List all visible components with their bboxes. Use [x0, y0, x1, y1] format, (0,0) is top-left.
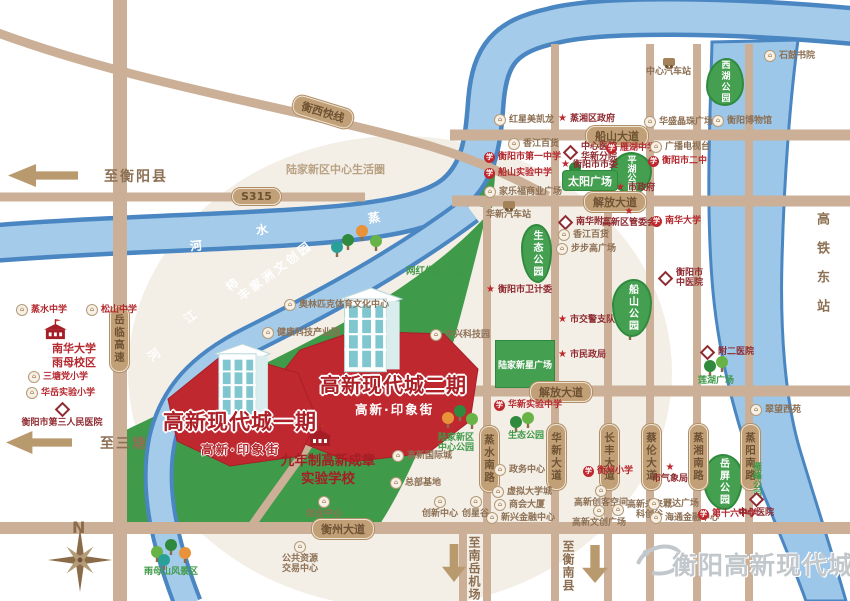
poi-huayue-primary: 华岳实验小学: [26, 387, 95, 399]
poi-star-valley: 创星谷: [462, 496, 489, 519]
poi-city-committee: 衡阳市市委: [561, 160, 618, 170]
place-icon: [494, 464, 506, 476]
poi-central-bus-station: 中心汽车站: [646, 58, 691, 77]
poi-yanhu-middle: 雁湖中学: [606, 143, 656, 154]
place-icon: [764, 50, 776, 62]
place-icon: [294, 541, 306, 553]
place-icon: [262, 327, 274, 339]
river-label-xiangjiang: 江: [789, 320, 801, 337]
nanhua-campus-label: 南华大学 雨母校区: [28, 342, 120, 371]
place-icon: [484, 186, 496, 198]
phase2-street-label: 高新·印象街: [355, 399, 434, 418]
poi-startup-center: 创业中心: [306, 496, 342, 519]
place-icon: [86, 304, 98, 316]
poi-civil-affairs: 市民政局: [558, 350, 606, 360]
road-label-jiefang-avenue-south: 解放大道: [530, 382, 592, 402]
star-icon: [666, 463, 675, 473]
poi-tv-station: 广播电视台: [650, 141, 710, 153]
place-icon: [650, 141, 662, 153]
poi-resource-center: 公共资源 交易中心: [282, 541, 318, 575]
hospital-icon: [54, 402, 70, 418]
poi-huaxin-exp-middle: 华新实验中学: [494, 400, 562, 411]
poi-xiangjiang-store-south: 香江百货: [558, 229, 609, 241]
poi-hengyang-museum: 衡阳博物馆: [712, 115, 772, 127]
place-icon: [595, 485, 607, 497]
poi-no3-hospital: 衡阳市第三人民医院: [12, 402, 112, 428]
dir-to-santang: 至三塘: [100, 433, 148, 453]
place-icon: [508, 138, 520, 150]
poi-zhengshui-middle: 蒸水中学: [16, 304, 67, 316]
poi-huasheng-plaza: 华盛晶珠广场: [644, 116, 713, 128]
star-icon: [625, 207, 634, 217]
poi-carrefour-plaza: 家乐福商业广场: [484, 186, 562, 198]
school-icon: [494, 400, 505, 411]
river-label-xiangjiang: 湘: [787, 288, 799, 305]
poi-city-gov: 市政府: [616, 183, 655, 193]
compass-north-label: N: [72, 518, 85, 537]
poi-health-tech-park: 健康科技产业园: [262, 327, 340, 339]
dir-to-hengnan-county: 至衡南县: [560, 540, 577, 592]
place-icon: [434, 496, 446, 508]
poi-virtual-university: 虚拟大学城: [492, 486, 552, 498]
river-label-zhengshui: 河: [189, 236, 203, 254]
place-icon: [650, 512, 662, 524]
school-icon: [648, 156, 659, 167]
hospital-icon: [700, 345, 716, 361]
phase2-title: 高新现代城二期: [320, 369, 467, 398]
school-icon: [484, 168, 495, 179]
poi-olympic-center: 奥林匹克体育文化中心: [284, 299, 389, 311]
poi-central-hospital-south: 中心医院: [738, 492, 774, 518]
poi-songshan-middle: 松山中学: [86, 304, 137, 316]
school-icon: [651, 216, 662, 227]
place-icon: [430, 329, 442, 341]
yumu-scenic-label: 雨母山风景区: [144, 567, 198, 577]
poi-traffic-police: 市交警支队: [558, 315, 615, 325]
poi-meteorology: 市气象局: [652, 463, 688, 484]
poi-xiangjiang-store-north: 香江百货: [508, 138, 559, 150]
poi-nanhua-university: 南华大学: [651, 216, 701, 227]
school-icon: [698, 509, 709, 520]
chengzhang-school-label: 九年制高新成章 实验学校: [272, 452, 384, 488]
bus-icon: [663, 58, 675, 66]
poi-gov-service-center: 政务中心: [494, 464, 545, 476]
compass-icon: [48, 528, 112, 592]
place-icon: [16, 304, 28, 316]
road-label-huaxin-avenue: 华新大道: [547, 424, 566, 490]
lianhu-plaza-label: 莲湖广场: [698, 376, 734, 386]
river-label-zhengshui: 水: [255, 220, 269, 239]
poi-hq-base: 总部基地: [390, 477, 441, 489]
park-xihu: 西湖公园: [706, 58, 744, 106]
dir-to-hengyang-county: 至衡阳县: [104, 166, 168, 186]
place-icon: [712, 115, 724, 127]
school-icon: [583, 466, 594, 477]
place-icon: [28, 371, 40, 383]
place-icon: [558, 229, 570, 241]
star-icon: [558, 315, 567, 325]
place-icon: [470, 496, 482, 508]
poi-chuanshan-exp-middle: 船山实验中学: [484, 168, 552, 179]
place-icon: [494, 114, 506, 126]
park-eco-south-label: 生态公园: [508, 431, 544, 441]
poi-hongxing-meikailong: 红星美凯龙: [494, 114, 554, 126]
place-icon: [494, 499, 506, 511]
star-icon: [558, 350, 567, 360]
road-label-zhengshui-south-road: 蒸水南路: [480, 426, 499, 492]
road-label-s315: S315: [232, 188, 281, 205]
place-icon: [492, 486, 504, 498]
poi-fu2-hospital: 附二医院: [700, 345, 754, 360]
hospital-icon: [748, 492, 764, 508]
bus-icon: [503, 201, 515, 209]
lujia-star-plaza: 陆家新星广场: [495, 340, 555, 388]
phase1-title: 高新现代城一期: [163, 406, 317, 436]
place-icon: [556, 243, 568, 255]
place-icon: [612, 504, 624, 516]
star-icon: [561, 160, 570, 170]
poi-tcm-hospital: 衡阳市 中医院: [658, 268, 703, 289]
life-circle-label: 陆家新区中心生活圈: [286, 161, 385, 177]
poi-huaxin-bus-station: 华新汽车站: [486, 201, 531, 220]
poi-xinxing-finance: 新兴金融中心: [486, 512, 555, 524]
star-icon: [616, 183, 625, 193]
hospital-icon: [558, 215, 574, 231]
road-label-zhengxiang-south-road: 蒸湘南路: [689, 424, 708, 490]
brand-logo: 衡阳高新现代城: [672, 546, 850, 582]
poi-zhengxiang-gov: 蒸湘区政府: [558, 114, 615, 124]
road-label-hengzhou-avenue: 衡州大道: [312, 519, 374, 539]
poi-wanda-plaza: 万达广场: [648, 498, 699, 510]
taiyang-plaza: 太阳广场: [562, 170, 618, 191]
eco-corridor-label: 网红生态长廊: [406, 263, 463, 277]
place-icon: [644, 116, 656, 128]
poi-zhongxing-tech: 中兴科技园: [430, 329, 490, 341]
poi-bbg-plaza: 步步高广场: [556, 243, 616, 255]
hospital-icon: [563, 145, 579, 161]
poi-santang-primary: 三塘党小学: [28, 371, 88, 383]
place-icon: [392, 450, 404, 462]
place-icon: [26, 387, 38, 399]
school-icon: [606, 143, 617, 154]
place-icon: [648, 498, 660, 510]
school-icon: [484, 152, 495, 163]
road-label-changfeng-avenue: 长丰大道: [600, 424, 619, 490]
poi-intl-city: 高新国际城: [392, 450, 452, 462]
place-icon: [593, 505, 605, 517]
poi-chamber-building: 商会大厦: [494, 499, 545, 511]
poi-no1-middle-school: 衡阳市第一中学: [484, 152, 561, 163]
poi-hsr-east-station: 高铁东站: [812, 212, 831, 397]
place-icon: [390, 477, 402, 489]
poi-cuiwang-xiyuan: 翠望西苑: [750, 404, 801, 416]
star-icon: [558, 114, 567, 124]
map-canvas: S315 衡西快线 岳临高速 船山大道 解放大道 解放大道 衡州大道 蒸水南路 …: [0, 0, 850, 601]
phase1-street-label: 高新·印象街: [201, 439, 280, 458]
poi-no2-middle: 衡阳市二中: [648, 156, 707, 167]
place-icon: [318, 496, 330, 508]
place-icon: [750, 404, 762, 416]
star-icon: [486, 285, 495, 295]
poi-shigu-academy: 石鼓书院: [764, 50, 815, 62]
dir-to-nanyue-airport: 至南岳机场: [466, 536, 483, 601]
poi-health-commission: 衡阳市卫计委: [486, 285, 552, 295]
hospital-icon: [658, 271, 674, 287]
place-icon: [284, 299, 296, 311]
poi-hengzhou-primary: 衡州小学: [583, 466, 633, 477]
poi-gaoxin-committee: 高新区管委会: [602, 207, 656, 228]
poi-innovation-center: 创新中心: [422, 496, 458, 519]
